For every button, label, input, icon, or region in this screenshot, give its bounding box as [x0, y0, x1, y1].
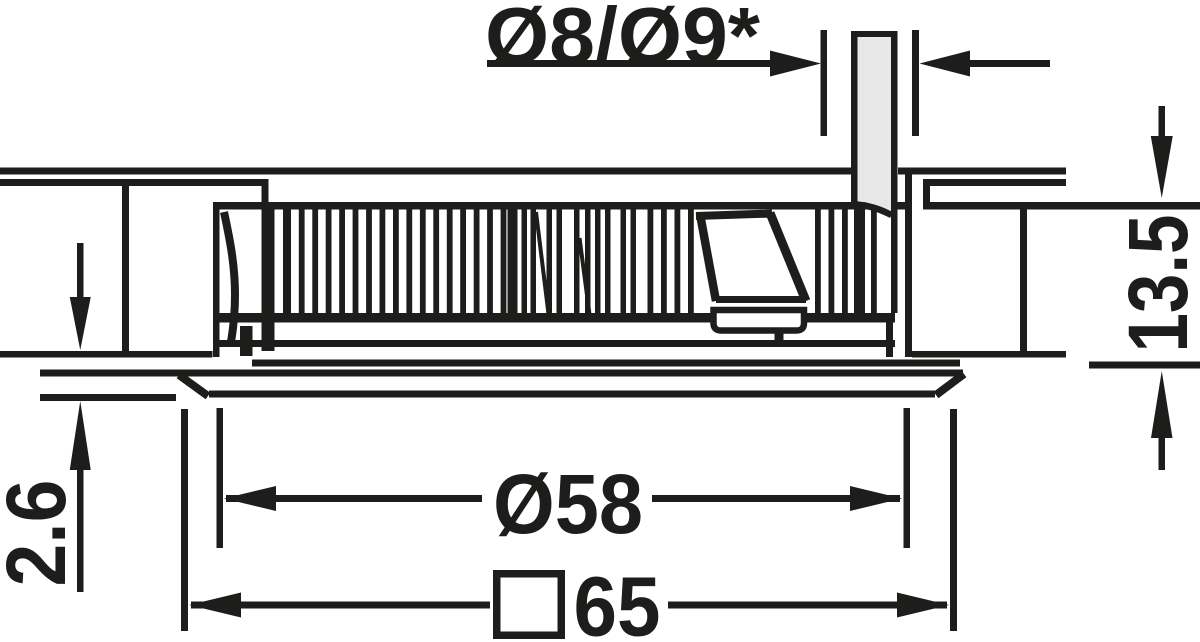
svg-text:Ø8/Ø9*: Ø8/Ø9* — [485, 0, 761, 80]
svg-text:Ø58: Ø58 — [493, 457, 643, 551]
svg-text:65: 65 — [574, 560, 661, 642]
svg-text:2.6: 2.6 — [0, 480, 83, 587]
svg-text:13.5: 13.5 — [1111, 215, 1200, 353]
